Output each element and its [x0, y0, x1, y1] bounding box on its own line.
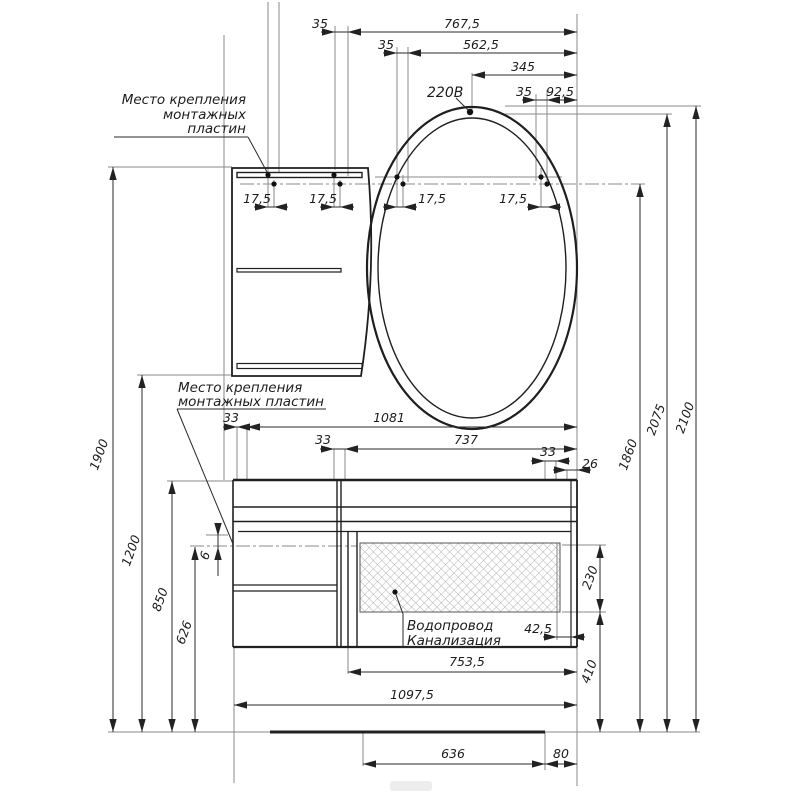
power-label: 220В [427, 85, 463, 101]
dim-33-mid: 33 [315, 432, 331, 447]
dim-1900: 1900 [86, 437, 111, 472]
dim-767-5: 767,5 [444, 16, 480, 31]
dim-230: 230 [579, 564, 601, 592]
dim-410: 410 [578, 658, 600, 686]
cabinet-shelf [237, 269, 341, 273]
dim-17-5-2: 17,5 [309, 191, 337, 206]
mount-label-mid-line2: монтажных пластин [178, 394, 324, 410]
dim-1097-5: 1097,5 [390, 687, 434, 702]
dim-26: 26 [582, 456, 598, 471]
dim-850: 850 [149, 586, 171, 614]
dim-2075: 2075 [643, 402, 668, 437]
dim-1200: 1200 [118, 533, 143, 568]
mirror-inner [378, 118, 566, 418]
dim-1860: 1860 [615, 437, 640, 472]
dim-17-5-4: 17,5 [499, 191, 527, 206]
dim-92-5: 92,5 [546, 84, 574, 99]
cabinet-bottom-shelf [237, 364, 362, 369]
dim-80: 80 [553, 746, 569, 761]
dim-17-5-1: 17,5 [243, 191, 271, 206]
mounting-plate-top [237, 173, 362, 178]
dim-33-right: 33 [540, 444, 556, 459]
dim-345: 345 [511, 59, 535, 74]
installation-diagram: 35 767,5 35 562,5 345 35 92,5 17,5 17,5 … [0, 0, 800, 800]
dim-17-5-3: 17,5 [418, 191, 446, 206]
dim-753-5: 753,5 [449, 654, 485, 669]
dim-562-5: 562,5 [463, 37, 499, 52]
watermark [390, 781, 432, 791]
plumbing-label-line2: Канализация [407, 633, 501, 649]
plumbing-label-line1: Водопровод [407, 618, 493, 634]
dim-35-second: 35 [378, 37, 394, 52]
dim-33-left: 33 [223, 410, 239, 425]
dim-6: 6 [196, 549, 213, 562]
plumbing-point [392, 589, 397, 594]
dim-1081: 1081 [373, 410, 405, 425]
dim-2100: 2100 [672, 400, 697, 435]
power-outlet-point [467, 109, 473, 115]
mount-label-top-line3: пластин [187, 121, 246, 137]
dim-626: 626 [173, 619, 195, 647]
dim-35-right: 35 [516, 84, 532, 99]
dim-737: 737 [454, 432, 478, 447]
dim-35-top-left: 35 [312, 16, 328, 31]
dim-42-5: 42,5 [524, 621, 552, 636]
hatch-area [360, 543, 560, 612]
mount-label-top-line1: Место крепления [122, 92, 246, 108]
dim-636: 636 [441, 746, 465, 761]
technical-drawing: 35 767,5 35 562,5 345 35 92,5 17,5 17,5 … [0, 0, 800, 800]
mirror-outer [367, 107, 577, 429]
